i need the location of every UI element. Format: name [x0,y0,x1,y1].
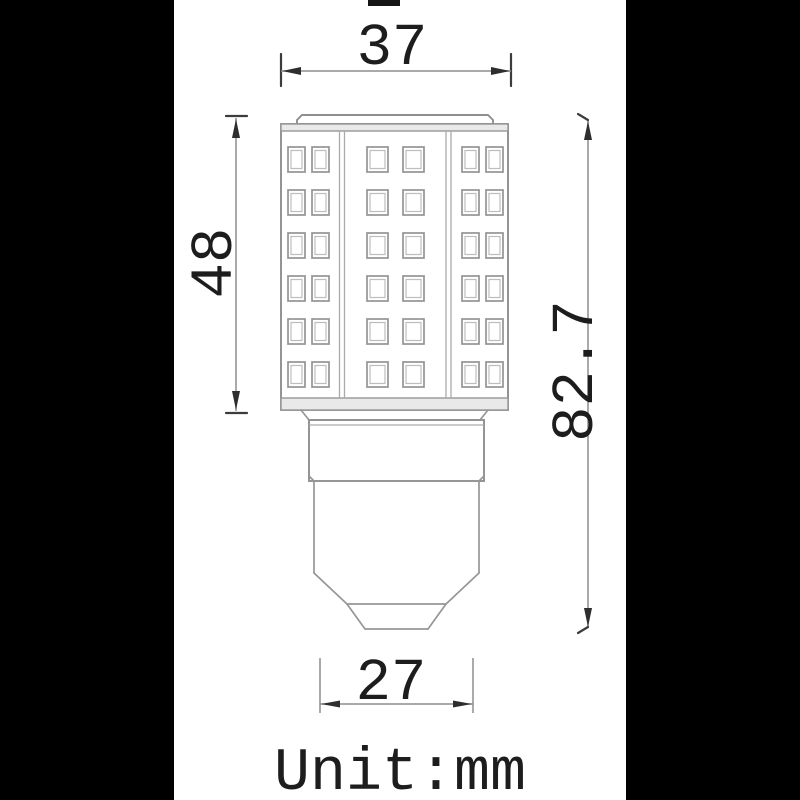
led-chip-inner [370,237,385,255]
dim-top-width: 37 [281,15,511,86]
screenshot-stage: 37 [0,0,800,800]
led-chip-inner [315,323,326,341]
bulb-base [301,410,488,629]
dim-827-end-tick-bottom [578,627,588,633]
arrow-up-icon [232,119,240,138]
led-chip-inner [489,151,500,169]
led-chip-inner [315,151,326,169]
head-bottom-band [281,398,508,410]
letterbox-right [626,0,800,800]
led-chip-inner [406,194,421,212]
arrow-up-icon [584,121,592,140]
bulb-head [281,115,508,410]
led-chip-inner [465,151,476,169]
tip-left [347,604,365,629]
shoulder-chamfer-left [301,410,309,420]
led-chip-inner [291,366,302,384]
drawing-svg: 37 [174,0,626,800]
led-chip-inner [291,151,302,169]
arrow-down-icon [232,391,240,410]
led-chip-inner [370,151,385,169]
head-top-lip [297,115,493,124]
arrow-left-icon [282,67,301,75]
arrow-left-icon [321,701,340,708]
arrow-right-icon [491,67,510,75]
led-chip-inner [315,194,326,212]
led-chip-inner [291,194,302,212]
led-chip-inner [370,366,385,384]
led-chip-inner [291,280,302,298]
dim-led-height: 48 [182,116,249,413]
led-chip-inner [489,280,500,298]
led-chip-inner [406,280,421,298]
led-chip-inner [406,366,421,384]
arrow-right-icon [453,701,472,708]
led-chip-inner [315,237,326,255]
unit-label: Unit:mm [274,740,526,800]
led-chip-inner [315,366,326,384]
led-chip-inner [370,194,385,212]
base-collar [309,420,484,481]
led-chip-inner [489,323,500,341]
led-chip-inner [465,194,476,212]
taper-left [314,573,347,604]
dim-base-width: 27 [320,650,473,717]
dim-base-width-label: 27 [356,650,427,717]
led-chip-inner [315,280,326,298]
head-top-band [281,124,508,131]
dim-top-width-label: 37 [357,15,428,82]
dim-led-height-label: 48 [182,228,249,299]
dim-total-height-label: 82.7 [543,300,610,442]
led-chip-inner [406,237,421,255]
led-chip-inner [489,194,500,212]
led-chip-inner [465,280,476,298]
led-chip-inner [489,237,500,255]
led-chip-inner [489,366,500,384]
led-chip-inner [370,280,385,298]
led-chip-inner [465,366,476,384]
letterbox-left [0,0,174,800]
led-chip-inner [291,323,302,341]
drawing-paper: 37 [174,0,626,800]
tip-right [428,604,446,629]
taper-right [446,573,479,604]
arrow-down-icon [584,608,592,627]
crop-artifact [368,0,400,6]
dim-827-end-tick-top [578,114,588,120]
led-chip-inner [465,323,476,341]
dim-total-height: 82.7 [543,114,610,633]
led-chip-inner [291,237,302,255]
led-chip-inner [465,237,476,255]
led-chip-inner [370,323,385,341]
led-chip-inner [406,323,421,341]
led-chip-inner [406,151,421,169]
shoulder-chamfer-right [480,410,488,420]
